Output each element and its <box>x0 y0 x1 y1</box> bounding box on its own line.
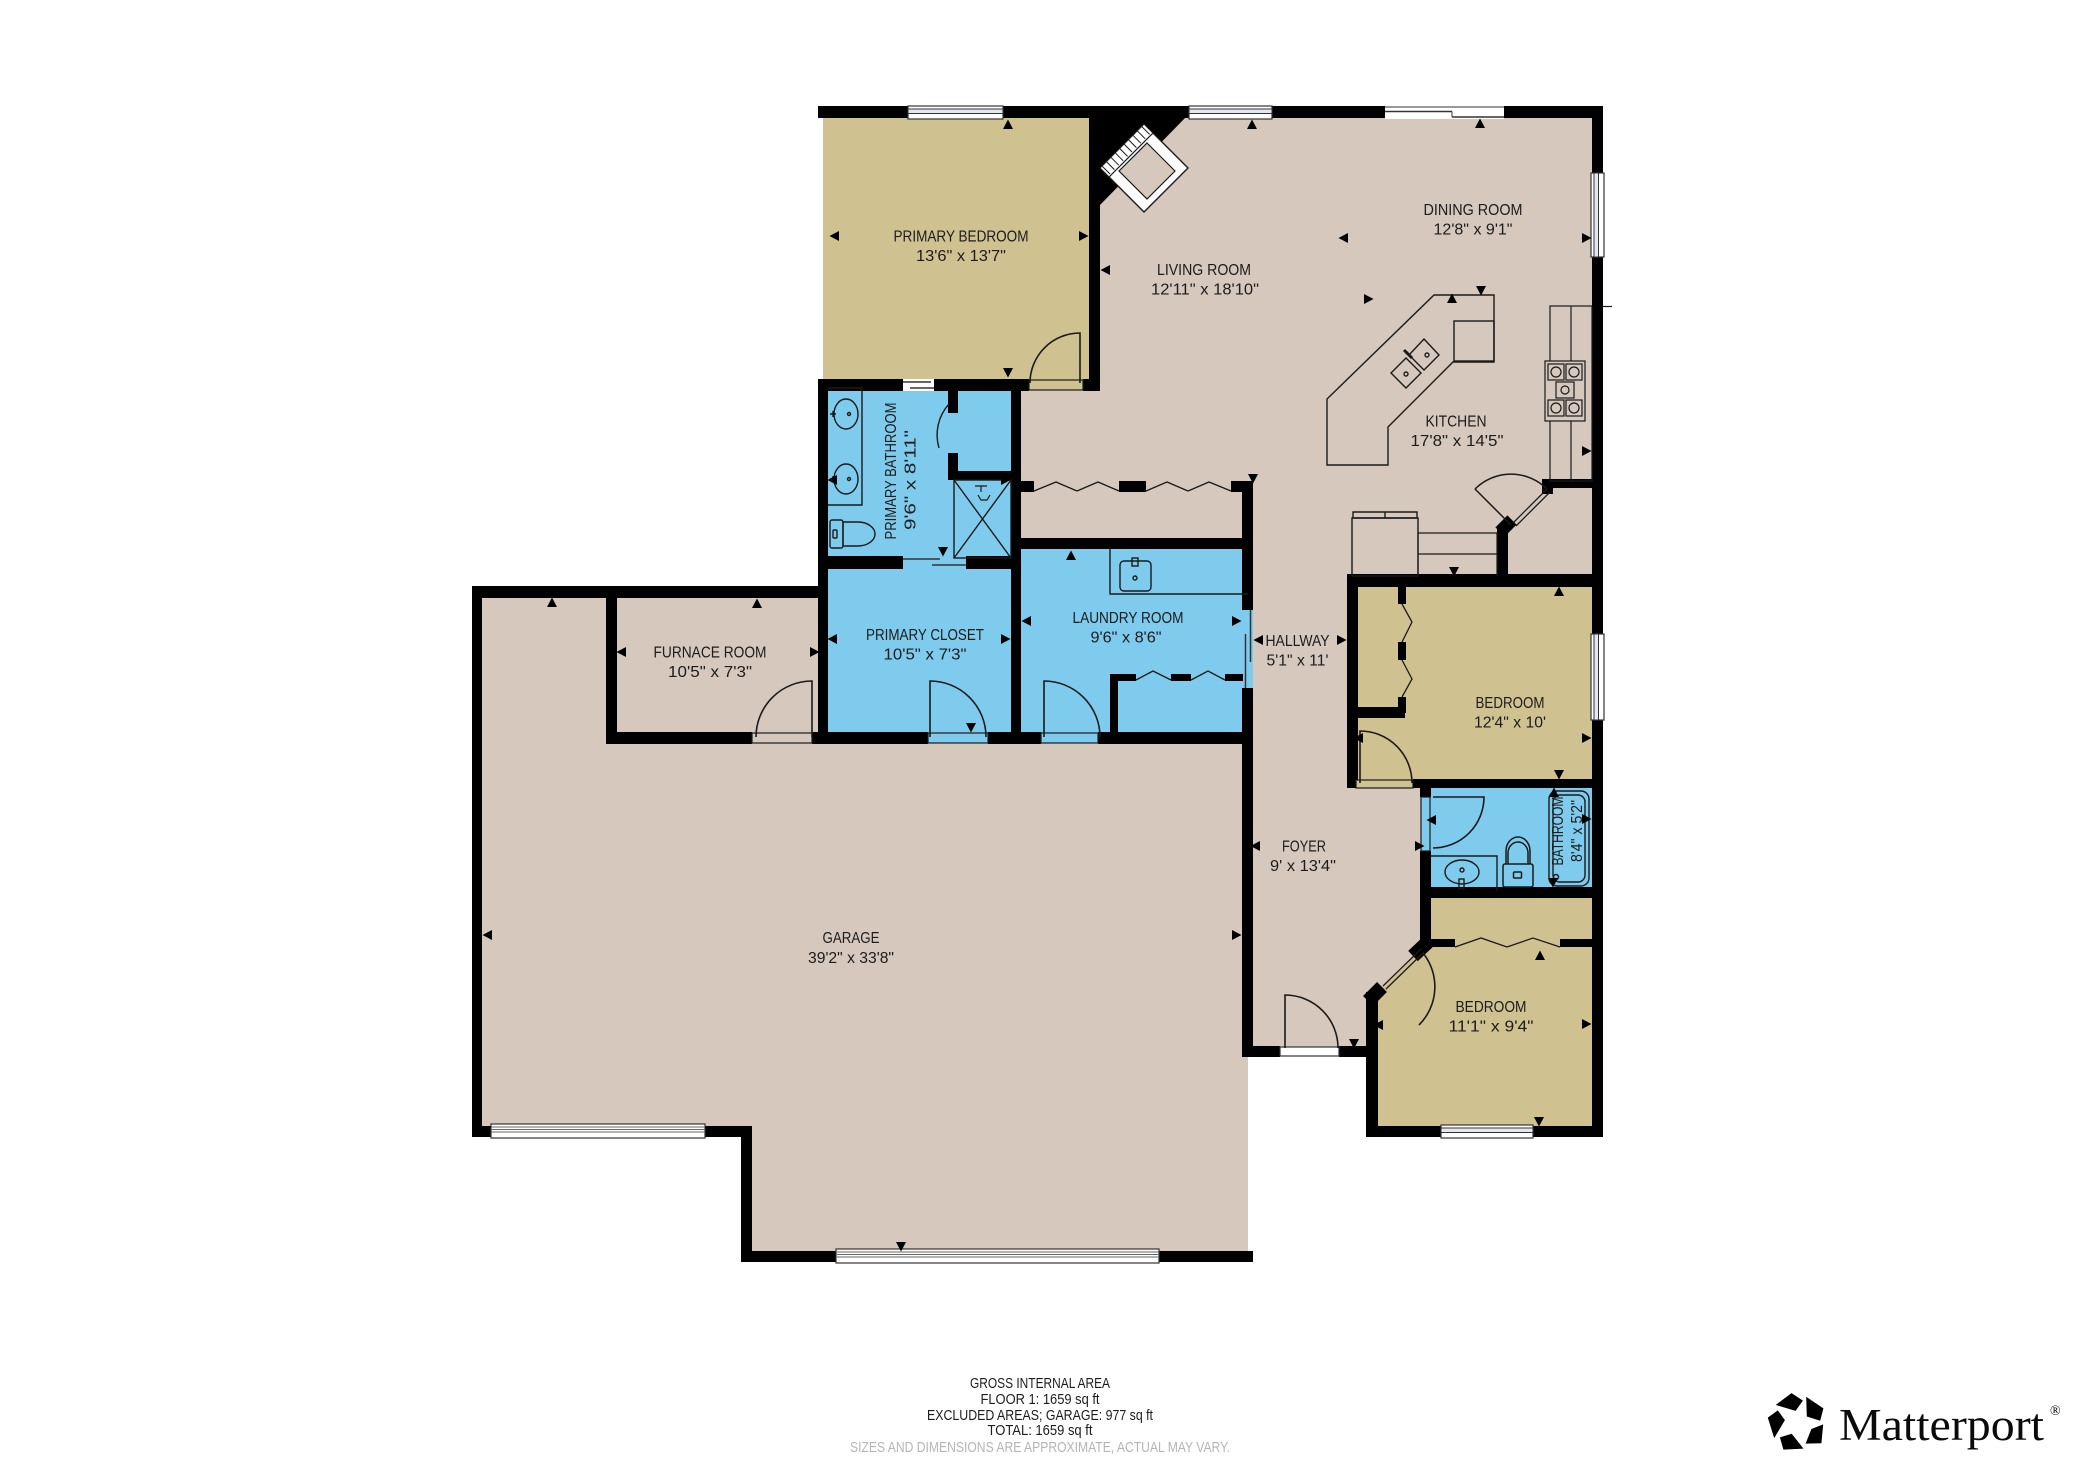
svg-text:BEDROOM: BEDROOM <box>1476 695 1545 712</box>
svg-text:Matterport: Matterport <box>1839 1400 2045 1450</box>
svg-text:PRIMARY CLOSET: PRIMARY CLOSET <box>866 627 984 644</box>
svg-text:12'11" x 18'10": 12'11" x 18'10" <box>1151 282 1259 299</box>
svg-text:8'4" x 5'2": 8'4" x 5'2" <box>1569 800 1586 862</box>
svg-text:17'8" x 14'5": 17'8" x 14'5" <box>1411 433 1504 450</box>
svg-text:9' x 13'4": 9' x 13'4" <box>1270 858 1336 875</box>
svg-text:10'5" x 7'3": 10'5" x 7'3" <box>884 647 967 664</box>
svg-text:PRIMARY BATHROOM: PRIMARY BATHROOM <box>883 403 900 540</box>
svg-text:FOYER: FOYER <box>1282 839 1326 856</box>
svg-text:DINING ROOM: DINING ROOM <box>1424 202 1523 219</box>
svg-text:13'6" x 13'7": 13'6" x 13'7" <box>916 248 1006 265</box>
svg-text:PRIMARY BEDROOM: PRIMARY BEDROOM <box>894 229 1029 246</box>
svg-text:9'6" x 8'6": 9'6" x 8'6" <box>1091 630 1162 647</box>
svg-text:GARAGE: GARAGE <box>823 930 880 947</box>
svg-text:BATHROOM: BATHROOM <box>1550 797 1567 866</box>
svg-text:9'6" x 8'11": 9'6" x 8'11" <box>903 430 920 530</box>
svg-text:FURNACE ROOM: FURNACE ROOM <box>654 645 767 662</box>
svg-text:11'1" x 9'4": 11'1" x 9'4" <box>1449 1019 1534 1036</box>
svg-text:SIZES AND DIMENSIONS ARE APPRO: SIZES AND DIMENSIONS ARE APPROXIMATE, AC… <box>850 1440 1230 1456</box>
svg-text:KITCHEN: KITCHEN <box>1426 414 1487 431</box>
svg-text:®: ® <box>2050 1404 2061 1419</box>
svg-text:HALLWAY: HALLWAY <box>1266 633 1330 650</box>
svg-text:12'4" x 10': 12'4" x 10' <box>1474 715 1546 732</box>
svg-text:BEDROOM: BEDROOM <box>1456 999 1527 1016</box>
svg-text:39'2" x 33'8": 39'2" x 33'8" <box>808 950 894 967</box>
svg-text:TOTAL: 1659 sq ft: TOTAL: 1659 sq ft <box>988 1422 1094 1439</box>
svg-text:FLOOR 1: 1659 sq ft: FLOOR 1: 1659 sq ft <box>981 1391 1101 1408</box>
svg-text:LIVING ROOM: LIVING ROOM <box>1157 262 1251 279</box>
svg-text:12'8" x 9'1": 12'8" x 9'1" <box>1434 222 1513 239</box>
svg-text:10'5" x 7'3": 10'5" x 7'3" <box>668 664 752 681</box>
svg-text:LAUNDRY ROOM: LAUNDRY ROOM <box>1073 610 1184 627</box>
svg-text:GROSS INTERNAL AREA: GROSS INTERNAL AREA <box>970 1375 1110 1392</box>
svg-text:5'1" x 11': 5'1" x 11' <box>1267 653 1329 670</box>
